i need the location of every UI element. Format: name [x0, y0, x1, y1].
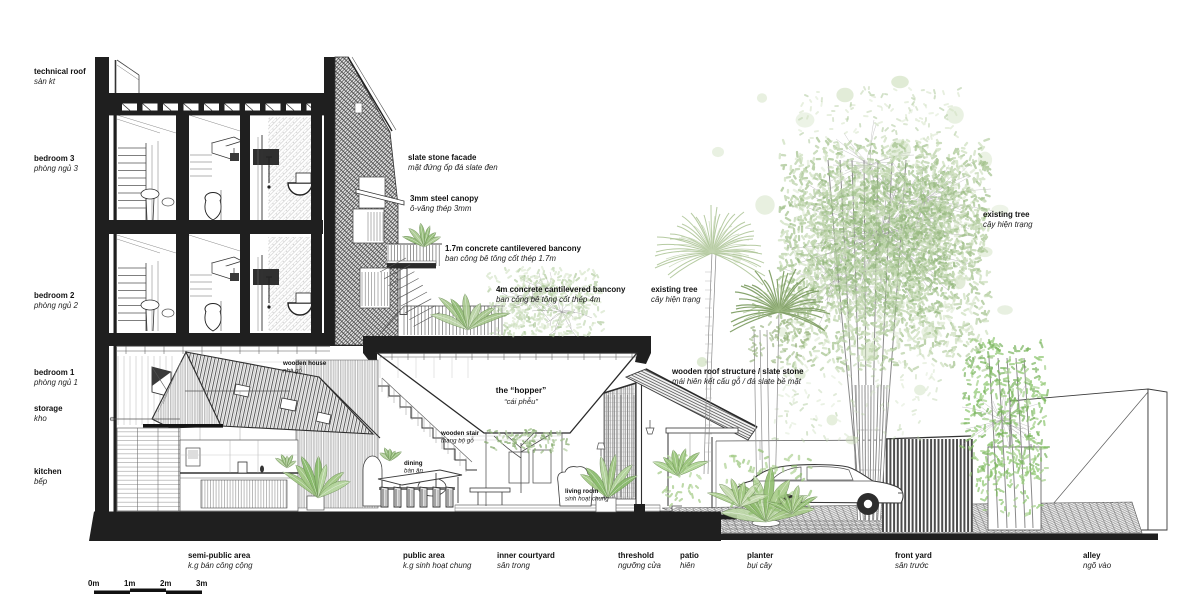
- svg-text:nhà gỗ: nhà gỗ: [283, 368, 302, 375]
- svg-text:technical roof: technical roof: [34, 67, 86, 76]
- svg-text:bếp: bếp: [34, 477, 48, 486]
- svg-text:0m: 0m: [88, 579, 99, 588]
- svg-text:threshold: threshold: [618, 551, 654, 560]
- svg-text:3m: 3m: [196, 579, 207, 588]
- svg-text:4m concrete cantilevered banco: 4m concrete cantilevered bancony: [496, 285, 626, 294]
- svg-text:k.g bán công cộng: k.g bán công cộng: [188, 561, 253, 570]
- svg-text:1.7m concrete cantilevered ban: 1.7m concrete cantilevered bancony: [445, 244, 582, 253]
- svg-text:storage: storage: [34, 404, 63, 413]
- svg-text:wooden roof structure / slate: wooden roof structure / slate stone: [671, 367, 804, 376]
- svg-text:sàn kt: sàn kt: [34, 77, 56, 86]
- svg-text:alley: alley: [1083, 551, 1101, 560]
- svg-text:“cái phễu”: “cái phễu”: [504, 397, 538, 406]
- svg-text:ban công bê tông cốt thép 4m: ban công bê tông cốt thép 4m: [496, 295, 601, 304]
- svg-text:patio: patio: [680, 551, 699, 560]
- svg-text:hiên: hiên: [680, 561, 696, 570]
- svg-text:planter: planter: [747, 551, 773, 560]
- svg-text:bedroom 1: bedroom 1: [34, 368, 75, 377]
- svg-text:existing tree: existing tree: [983, 210, 1030, 219]
- svg-text:ban công bê tông cốt thép 1.7m: ban công bê tông cốt thép 1.7m: [445, 254, 556, 263]
- svg-text:wooden house: wooden house: [282, 360, 327, 367]
- svg-text:kho: kho: [34, 414, 47, 423]
- svg-text:sân trước: sân trước: [895, 561, 929, 570]
- svg-text:ô-văng thép 3mm: ô-văng thép 3mm: [410, 204, 472, 213]
- svg-text:phòng ngủ 3: phòng ngủ 3: [33, 164, 78, 173]
- svg-text:ngưỡng cửa: ngưỡng cửa: [618, 561, 661, 570]
- svg-text:cây hiện trạng: cây hiện trạng: [651, 295, 701, 304]
- svg-text:kitchen: kitchen: [34, 467, 62, 476]
- svg-text:2m: 2m: [160, 579, 171, 588]
- svg-text:1m: 1m: [124, 579, 135, 588]
- svg-text:cây hiện trạng: cây hiện trạng: [983, 220, 1033, 229]
- svg-text:thang bộ gỗ: thang bộ gỗ: [441, 438, 474, 445]
- svg-text:bedroom 3: bedroom 3: [34, 154, 75, 163]
- svg-text:sinh hoạt chung: sinh hoạt chung: [565, 496, 609, 503]
- svg-text:sân trong: sân trong: [497, 561, 531, 570]
- svg-text:mặt đứng ốp đá slate đen: mặt đứng ốp đá slate đen: [408, 163, 498, 172]
- svg-text:phòng ngủ 1: phòng ngủ 1: [33, 378, 78, 387]
- svg-text:dining: dining: [404, 460, 423, 467]
- svg-text:the “hopper”: the “hopper”: [496, 386, 547, 395]
- svg-text:semi-public area: semi-public area: [188, 551, 251, 560]
- svg-text:public area: public area: [403, 551, 445, 560]
- svg-text:bàn ăn: bàn ăn: [404, 468, 423, 475]
- svg-text:slate stone facade: slate stone facade: [408, 153, 477, 162]
- svg-text:bụi cây: bụi cây: [747, 561, 773, 570]
- svg-text:mái hiên kết cấu gỗ / đá slate: mái hiên kết cấu gỗ / đá slate bề mặt: [672, 377, 802, 386]
- svg-text:ngõ vào: ngõ vào: [1083, 561, 1112, 570]
- svg-text:phòng ngủ 2: phòng ngủ 2: [33, 301, 78, 310]
- svg-text:wooden stair: wooden stair: [440, 430, 480, 437]
- svg-text:living room: living room: [565, 488, 599, 495]
- svg-text:k.g sinh hoạt chung: k.g sinh hoạt chung: [403, 561, 472, 570]
- svg-text:3mm steel canopy: 3mm steel canopy: [410, 194, 479, 203]
- svg-text:existing tree: existing tree: [651, 285, 698, 294]
- svg-text:front yard: front yard: [895, 551, 932, 560]
- svg-text:inner courtyard: inner courtyard: [497, 551, 555, 560]
- svg-text:bedroom 2: bedroom 2: [34, 291, 75, 300]
